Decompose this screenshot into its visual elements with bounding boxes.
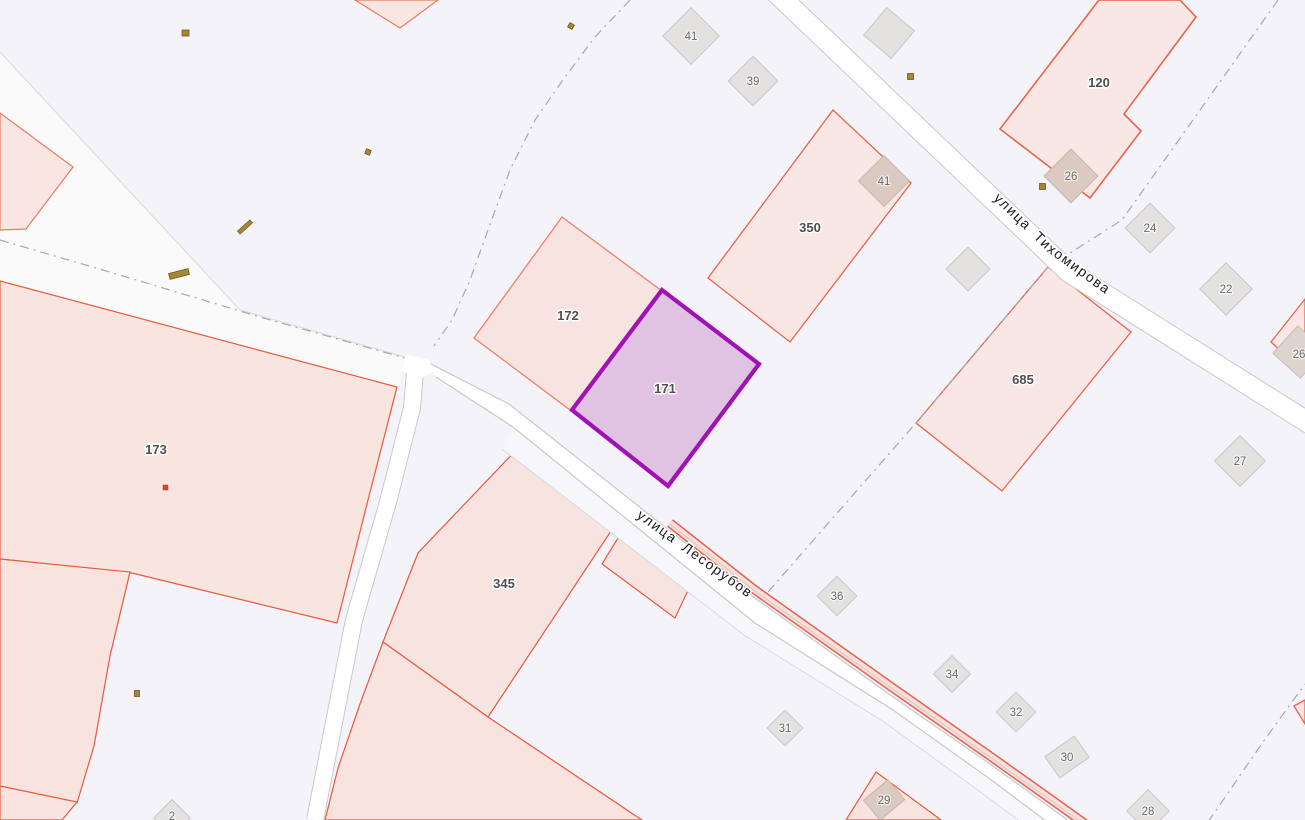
svg-text:173: 173 bbox=[145, 442, 167, 457]
svg-text:30: 30 bbox=[1061, 752, 1074, 764]
svg-text:345: 345 bbox=[493, 576, 515, 591]
svg-text:22: 22 bbox=[1220, 284, 1233, 296]
svg-text:31: 31 bbox=[779, 723, 792, 735]
svg-text:36: 36 bbox=[831, 591, 844, 603]
svg-text:171: 171 bbox=[654, 381, 676, 396]
svg-text:685: 685 bbox=[1012, 372, 1034, 387]
svg-text:32: 32 bbox=[1010, 707, 1023, 719]
svg-text:41: 41 bbox=[878, 176, 891, 188]
svg-text:172: 172 bbox=[557, 308, 579, 323]
svg-text:27: 27 bbox=[1234, 456, 1247, 468]
svg-text:28: 28 bbox=[1142, 806, 1155, 818]
svg-text:26: 26 bbox=[1293, 349, 1305, 361]
svg-text:24: 24 bbox=[1144, 223, 1157, 235]
svg-text:41: 41 bbox=[685, 31, 698, 43]
svg-text:350: 350 bbox=[799, 220, 821, 235]
svg-text:2: 2 bbox=[169, 811, 175, 820]
svg-text:29: 29 bbox=[878, 795, 891, 807]
svg-text:34: 34 bbox=[946, 669, 959, 681]
svg-text:39: 39 bbox=[747, 76, 760, 88]
svg-text:120: 120 bbox=[1088, 75, 1110, 90]
svg-text:26: 26 bbox=[1065, 171, 1078, 183]
